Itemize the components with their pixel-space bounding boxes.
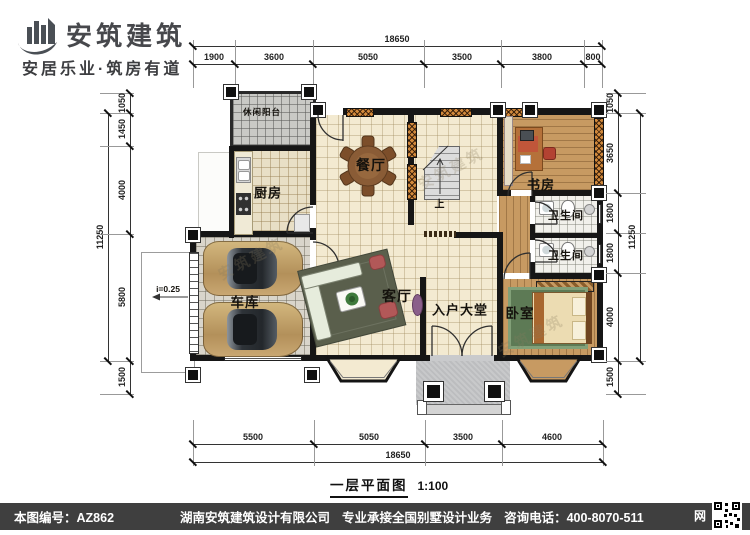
phone-number: 咨询电话：400-8070-511	[504, 507, 644, 526]
room-label-garage: 车库	[231, 291, 260, 311]
room-label-kitchen: 厨房	[254, 183, 282, 202]
bay-window-bedroom	[517, 358, 580, 381]
footer-bar: 本图编号：AZ862 湖南安筑建筑设计有限公司 专业承接全国别墅设计业务 咨询电…	[0, 503, 750, 530]
room-label-bath2: 卫生间	[548, 247, 584, 263]
floor-plan: 休闲阳台 厨房 餐厅 书房 卫生间 卫生间 车库 客厅 入户大堂 卧室 上 i=…	[0, 0, 750, 530]
ramp-slope-label: i=0.25	[156, 284, 180, 294]
company-name: 湖南安筑建筑设计有限公司	[180, 507, 330, 526]
room-label-living: 客厅	[382, 286, 412, 306]
room-label-dining: 餐厅	[356, 155, 386, 175]
plan-overlay	[0, 0, 750, 530]
room-label-study: 书房	[527, 175, 555, 194]
room-label-balcony: 休闲阳台	[243, 106, 281, 118]
room-label-bedroom: 卧室	[506, 302, 535, 322]
bay-window-living	[327, 358, 400, 381]
qr-code	[712, 500, 742, 530]
room-label-bath1: 卫生间	[548, 207, 584, 223]
stairs-up-label: 上	[435, 196, 446, 211]
service-slogan: 专业承接全国别墅设计业务	[342, 507, 492, 526]
plan-number: 本图编号：AZ862	[14, 507, 114, 526]
ramp-arrow	[152, 294, 188, 301]
room-label-entry: 入户大堂	[432, 300, 488, 319]
net-label: 网	[694, 507, 706, 524]
qr-code-icon	[712, 500, 742, 530]
